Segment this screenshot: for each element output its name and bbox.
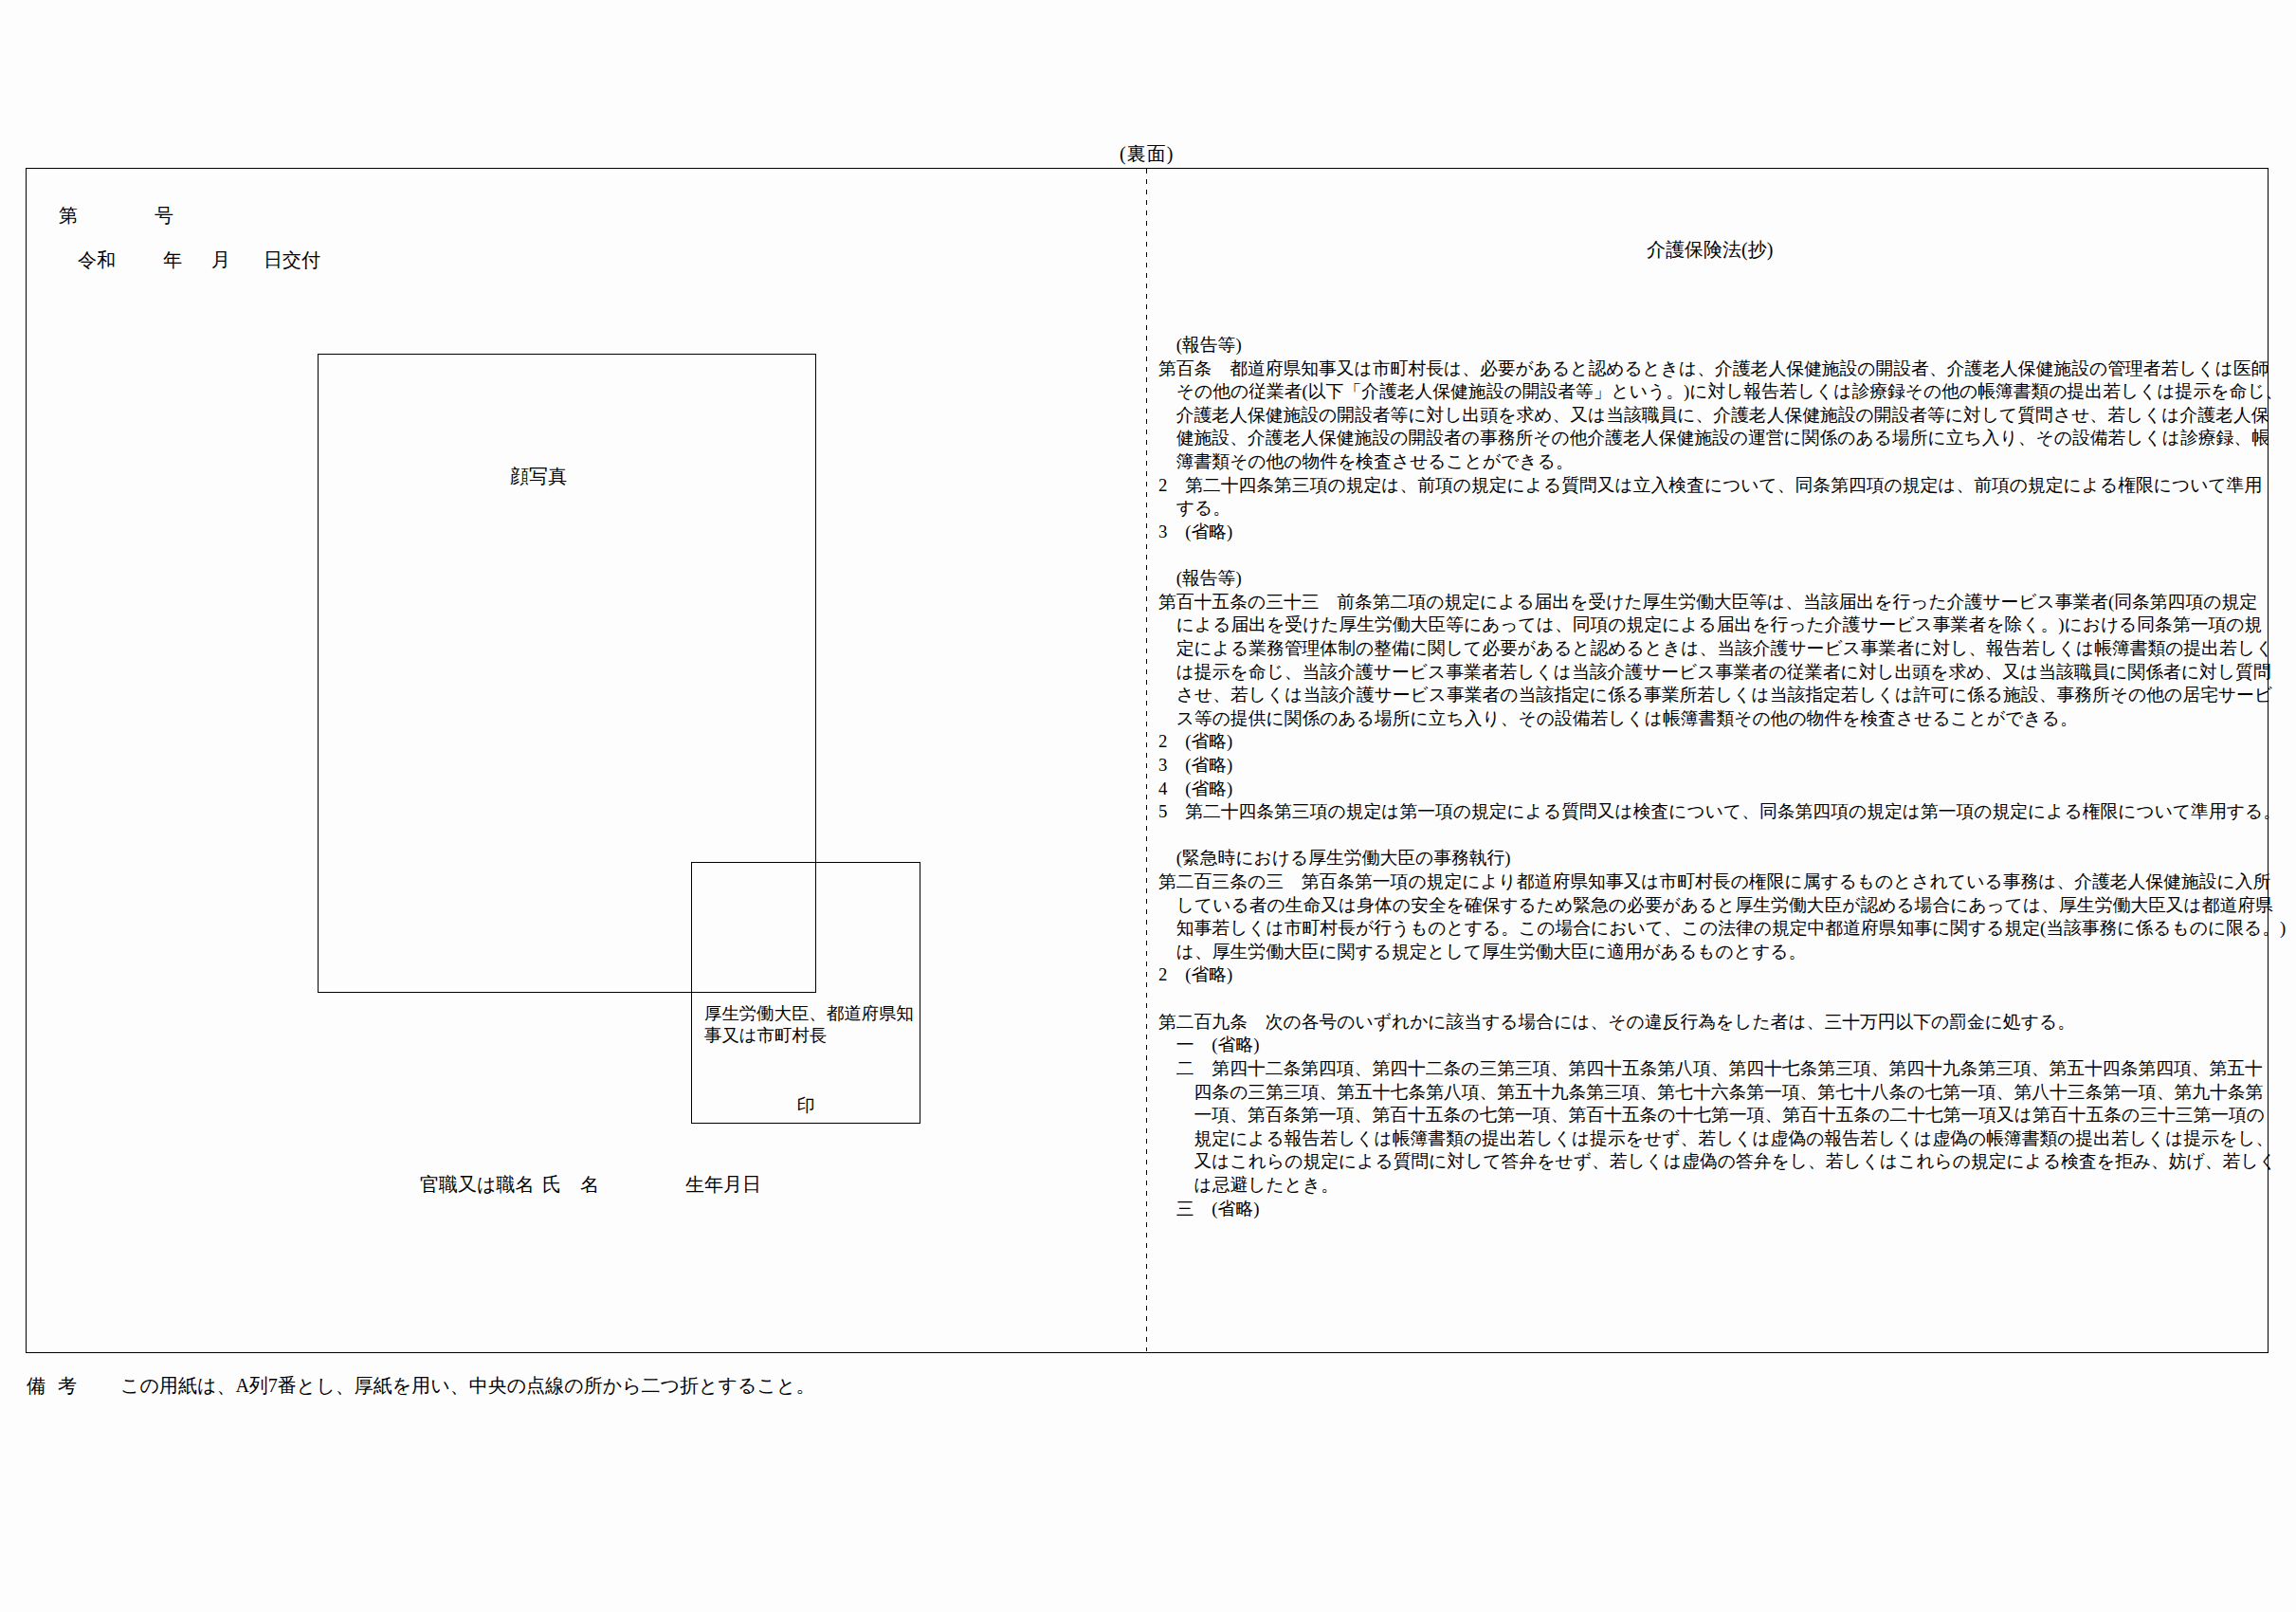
issuer-seal-box: 厚生労働大臣、都道府県知事又は市町村長 印 <box>691 862 920 1124</box>
law-line: 二 第四十二条第四項、第四十二条の三第三項、第四十五条第八項、第四十七条第三項、… <box>1158 1057 2283 1081</box>
law-line: 一 (省略) <box>1158 1034 2283 1057</box>
law-line: 簿書類その他の物件を検査させることができる。 <box>1158 450 2283 474</box>
law-line: している者の生命又は身体の安全を確保するため緊急の必要があると厚生労働大臣が認め… <box>1158 894 2283 918</box>
law-line: 介護老人保健施設の開設者等に対し出頭を求め、又は当該職員に、介護老人保健施設の開… <box>1158 404 2283 428</box>
law-line: (報告等) <box>1158 334 2283 357</box>
law-line: は、厚生労働大臣に関する規定として厚生労働大臣に適用があるものとする。 <box>1158 941 2283 964</box>
law-line: (緊急時における厚生労働大臣の事務執行) <box>1158 847 2283 870</box>
back-page: { "page": { "side_label": "(裏面)", "remar… <box>0 0 2296 1612</box>
issue-date-day-label: 日交付 <box>264 247 320 273</box>
law-line: 2 第二十四条第三項の規定は、前項の規定による質問又は立入検査について、同条第四… <box>1158 474 2283 498</box>
remark-label: 備考 <box>27 1373 89 1399</box>
law-line: 定による業務管理体制の整備に関して必要があると認めるときは、当該介護サービス事業… <box>1158 637 2283 661</box>
issue-date-month-label: 月 <box>211 247 230 273</box>
issue-date-year-label: 年 <box>163 247 182 273</box>
birthdate-label: 生年月日 <box>685 1172 761 1198</box>
fold-dashed-line <box>1146 169 1147 1351</box>
law-line: 第二百三条の三 第百条第一項の規定により都道府県知事又は市町村長の権限に属するも… <box>1158 870 2283 894</box>
law-line: 4 (省略) <box>1158 778 2283 801</box>
law-line: 5 第二十四条第三項の規定は第一項の規定による質問又は検査について、同条第四項の… <box>1158 800 2283 824</box>
seal-mark: 印 <box>692 1093 920 1118</box>
certificate-number-suffix: 号 <box>155 203 173 229</box>
law-line: は忌避したとき。 <box>1158 1174 2283 1198</box>
law-line: (報告等) <box>1158 567 2283 591</box>
law-line: 3 (省略) <box>1158 521 2283 544</box>
law-line: 第百十五条の三十三 前条第二項の規定による届出を受けた厚生労働大臣等は、当該届出… <box>1158 591 2283 614</box>
law-line: 知事若しくは市町村長が行うものとする。この場合において、この法律の規定中都道府県… <box>1158 917 2283 941</box>
law-line: 2 (省略) <box>1158 730 2283 754</box>
remark-text: この用紙は、A列7番とし、厚紙を用い、中央の点線の所から二つ折とすること。 <box>120 1373 814 1399</box>
law-line: ス等の提供に関係のある場所に立ち入り、その設備若しくは帳簿書類その他の物件を検査… <box>1158 707 2283 731</box>
official-title-label: 官職又は職名 <box>420 1172 534 1198</box>
law-line: 三 (省略) <box>1158 1198 2283 1221</box>
law-line: 一項、第百条第一項、第百十五条の七第一項、第百十五条の十七第一項、第百十五条の二… <box>1158 1104 2283 1127</box>
law-line: 規定による報告若しくは帳簿書類の提出若しくは提示をせず、若しくは虚偽の報告若しく… <box>1158 1127 2283 1151</box>
law-line: 2 (省略) <box>1158 963 2283 987</box>
issuer-name: 厚生労働大臣、都道府県知事又は市町村長 <box>704 1003 915 1046</box>
law-line: させ、若しくは当該介護サービス事業者の当該指定に係る事業所若しくは当該指定若しく… <box>1158 684 2283 707</box>
law-line: 3 (省略) <box>1158 754 2283 778</box>
law-line: 四条の三第三項、第五十七条第八項、第五十九条第三項、第七十六条第一項、第七十八条… <box>1158 1081 2283 1105</box>
law-title: 介護保険法(抄) <box>1647 237 1773 263</box>
law-line <box>1158 987 2283 1011</box>
law-line: 又はこれらの規定による質問に対して答弁をせず、若しくは虚偽の答弁をし、若しくはこ… <box>1158 1150 2283 1174</box>
law-line: は提示を命じ、当該介護サービス事業者若しくは当該介護サービス事業者の従業者に対し… <box>1158 661 2283 685</box>
law-line: による届出を受けた厚生労働大臣等にあっては、同項の規定による届出を行った介護サー… <box>1158 614 2283 637</box>
law-line: 第二百九条 次の各号のいずれかに該当する場合には、その違反行為をした者は、三十万… <box>1158 1011 2283 1035</box>
issue-date-era: 令和 <box>78 247 116 273</box>
law-line <box>1158 543 2283 567</box>
law-line: その他の従業者(以下「介護老人保健施設の開設者等」という。)に対し報告若しくは診… <box>1158 380 2283 404</box>
certificate-number-prefix: 第 <box>59 203 78 229</box>
side-label: (裏面) <box>1120 141 1174 167</box>
law-line <box>1158 824 2283 848</box>
law-line: する。 <box>1158 497 2283 521</box>
law-line: 第百条 都道府県知事又は市町村長は、必要があると認めるときは、介護老人保健施設の… <box>1158 357 2283 381</box>
law-text-block: (報告等)第百条 都道府県知事又は市町村長は、必要があると認めるときは、介護老人… <box>1158 334 2283 1220</box>
photo-box-label: 顔写真 <box>319 464 758 489</box>
law-line: 健施設、介護老人保健施設の開設者の事務所その他介護老人保健施設の運営に関係のある… <box>1158 427 2283 450</box>
name-label: 氏 名 <box>542 1172 599 1198</box>
